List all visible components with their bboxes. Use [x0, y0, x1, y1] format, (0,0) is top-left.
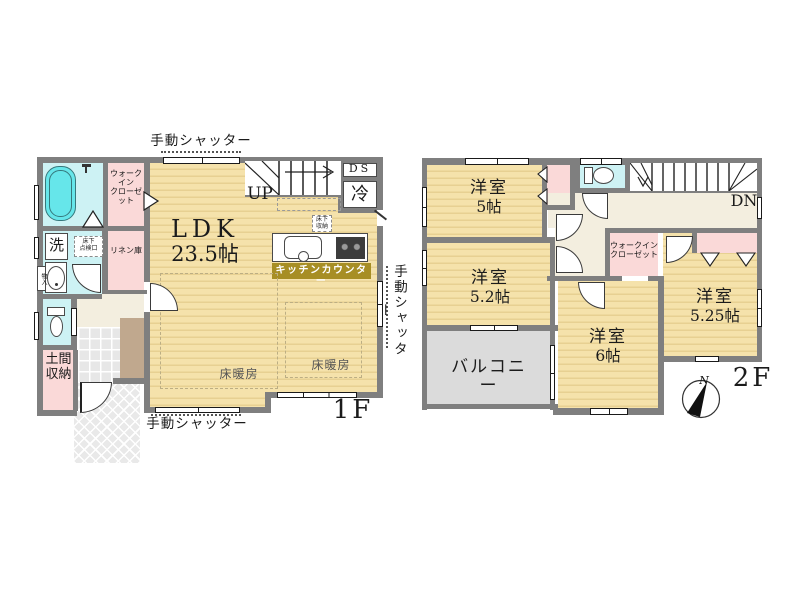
- wall: [422, 404, 558, 409]
- room-5-25jo-name: 洋室: [670, 288, 760, 307]
- wall: [547, 276, 622, 281]
- stairs-2f: [630, 163, 757, 191]
- window: [422, 250, 427, 286]
- closet-folding-door-icon: [536, 166, 548, 183]
- floor-plan-canvas: UP DS 冷 床下 収納 キッチンカウンター 床暖房 床暖房 洗 床: [0, 0, 800, 600]
- balcony-side-window: [550, 345, 555, 400]
- room-5-2jo-size: 5.2帖: [445, 289, 535, 306]
- wic-2f-label: ウォークイン クローゼット: [610, 242, 658, 260]
- balcony-window: [470, 325, 518, 331]
- compass-north-label: N: [698, 374, 709, 387]
- room-5-25jo-size: 5.25帖: [670, 308, 760, 325]
- wall: [658, 276, 664, 415]
- wall: [422, 237, 555, 243]
- balcony-label: バルコニー: [442, 358, 536, 396]
- toilet-bowl-2f: [593, 167, 614, 184]
- room-5jo-name: 洋室: [457, 179, 521, 198]
- toilet-tank-2f: [584, 167, 593, 184]
- room-6jo-size: 6帖: [576, 348, 640, 365]
- window: [695, 356, 719, 362]
- compass-icon: N: [678, 372, 726, 420]
- wall: [550, 400, 555, 410]
- window: [465, 158, 529, 165]
- window: [590, 408, 628, 415]
- room-5jo-size: 5帖: [457, 199, 521, 216]
- closet-hanger-pipe-icon: [736, 252, 756, 268]
- wic-2f-door-opening: [622, 276, 648, 281]
- closet-hanger-pipe-icon: [700, 252, 720, 268]
- window: [757, 197, 762, 219]
- wall: [610, 228, 762, 233]
- room-5-2jo-name: 洋室: [445, 269, 535, 288]
- window: [580, 158, 622, 165]
- window: [422, 187, 427, 227]
- room-5-25jo-closet: [697, 233, 757, 253]
- stairs-down-label: DN: [728, 192, 760, 210]
- closet-folding-door-icon: [536, 188, 548, 205]
- room-6jo-name: 洋室: [576, 328, 640, 347]
- floor-2-label: 2F: [722, 364, 784, 393]
- floor-2-plan: DN 洋室 5帖: [0, 0, 800, 600]
